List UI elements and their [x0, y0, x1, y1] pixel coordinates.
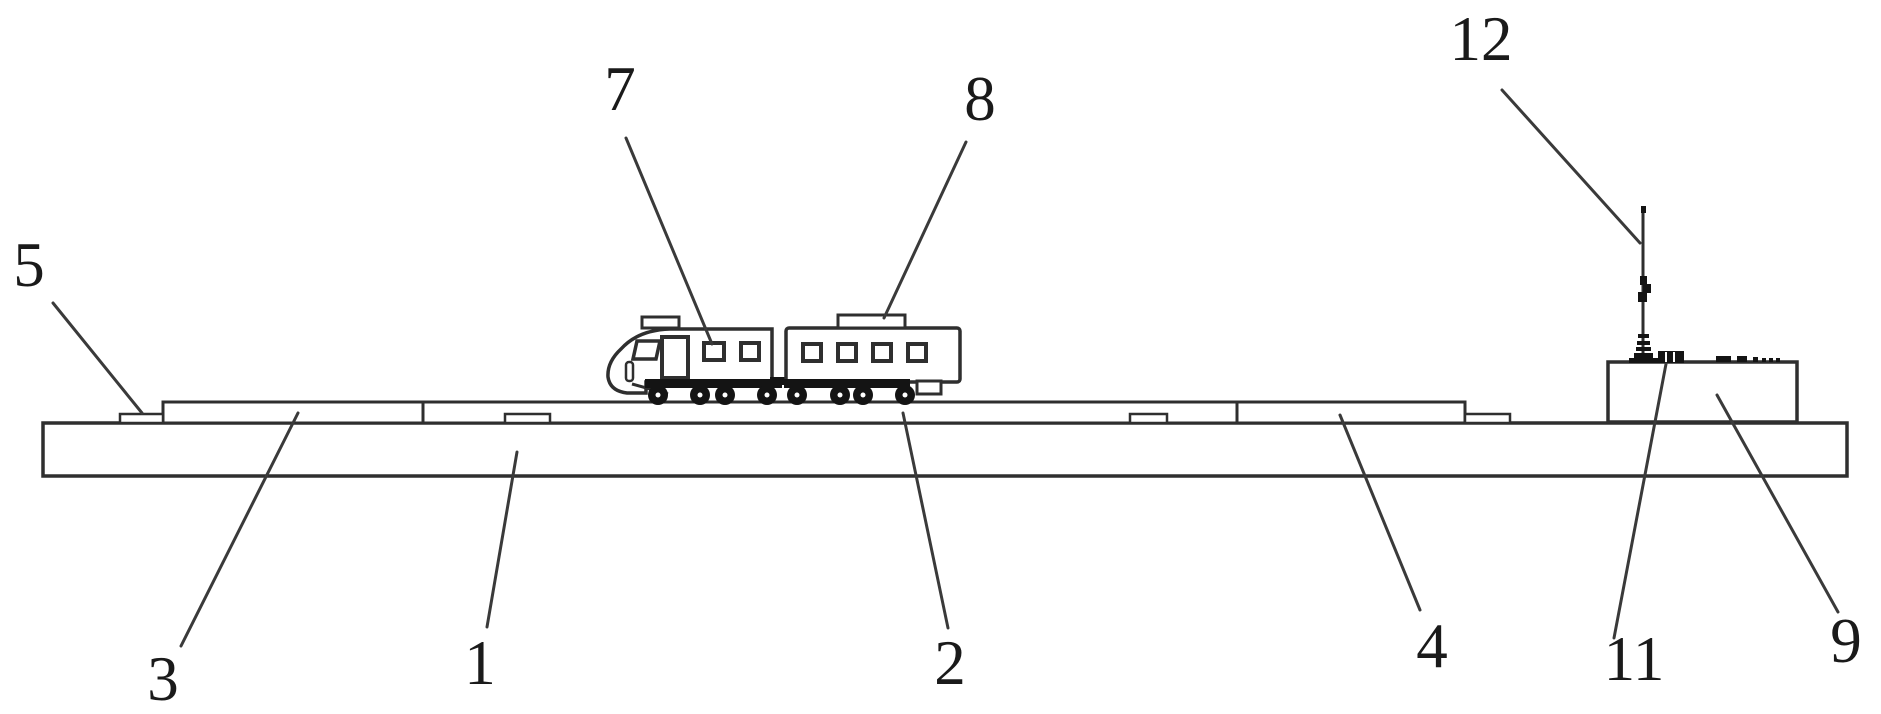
reference-label-8: 8: [964, 64, 996, 134]
reference-label-9: 9: [1830, 606, 1862, 676]
reference-label-7: 7: [604, 54, 636, 124]
leader-line-7: [626, 138, 712, 344]
reference-label-11: 11: [1604, 624, 1665, 694]
cabinet-body: [1608, 362, 1797, 422]
antenna-base-plate: [1629, 358, 1659, 363]
antenna-base-rung: [1634, 353, 1653, 358]
track-fastener-left: [505, 414, 550, 423]
reference-label-1: 1: [464, 628, 496, 698]
track-end-tab-left: [120, 414, 163, 423]
vent-dash: [1776, 358, 1780, 362]
patent-diagram: 578123124119: [0, 0, 1881, 714]
antenna-connector: [1638, 292, 1647, 302]
base-platform: [43, 423, 1847, 476]
antenna-base-rung: [1638, 334, 1649, 338]
wheel-hub: [765, 393, 770, 398]
track-segment-right: [1237, 402, 1465, 423]
reference-label-4: 4: [1416, 611, 1448, 681]
leader-line-1: [487, 452, 517, 627]
wheel-hub: [795, 393, 800, 398]
leader-line-8: [884, 142, 966, 318]
wheel-hub: [698, 393, 703, 398]
locomotive-window-1: [704, 343, 724, 360]
passenger-window-2: [838, 344, 856, 361]
passenger-window-3: [873, 344, 891, 361]
antenna-connector: [1640, 276, 1647, 285]
locomotive-cab-roof: [642, 317, 679, 328]
cabinet-top-module: [1658, 351, 1684, 363]
base-platform-slab: [43, 423, 1847, 476]
vent-dash: [1753, 357, 1758, 362]
vent-dash: [1737, 356, 1747, 362]
reference-label-3: 3: [147, 644, 179, 714]
train: [608, 315, 960, 405]
antenna-base-rung: [1636, 347, 1651, 351]
reference-label-12: 12: [1450, 4, 1513, 74]
track: [120, 402, 1510, 423]
leader-line-12: [1502, 90, 1640, 243]
reference-label-5: 5: [13, 230, 45, 300]
reference-label-2: 2: [934, 628, 966, 698]
vent-dash: [1716, 356, 1731, 362]
track-fastener-right: [1130, 414, 1167, 423]
windshield-window: [633, 341, 660, 359]
headlight: [626, 362, 633, 381]
wheel-hub: [903, 393, 908, 398]
leader-line-5: [53, 303, 142, 413]
wheel-hub: [723, 393, 728, 398]
antenna-tip: [1641, 206, 1646, 213]
wheel-hub: [861, 393, 866, 398]
locomotive-door: [662, 337, 688, 378]
wheel-hub: [838, 393, 843, 398]
passenger-window-4: [908, 344, 926, 361]
locomotive-window-2: [741, 343, 759, 360]
track-end-tab-right: [1465, 414, 1510, 423]
antenna-connector: [1643, 284, 1651, 293]
roof-equipment-box: [838, 315, 905, 328]
passenger-window-1: [803, 344, 821, 361]
figure-canvas: 578123124119: [0, 0, 1881, 714]
wheel-hub: [656, 393, 661, 398]
vent-dash: [1762, 358, 1766, 362]
vent-dash: [1769, 358, 1773, 362]
antenna-base-rung: [1637, 341, 1650, 345]
rear-step: [917, 381, 941, 394]
